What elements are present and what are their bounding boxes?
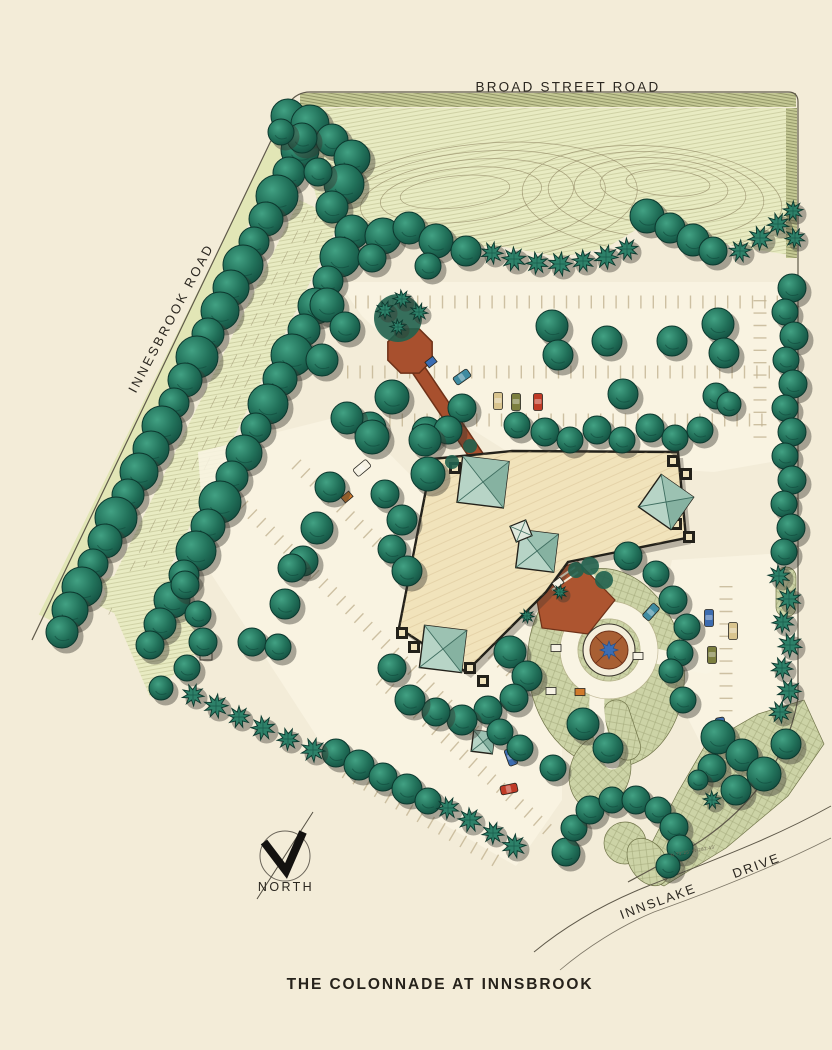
north-label: NORTH [258,880,314,894]
page-title: THE COLONNADE AT INNSBROOK [287,976,594,994]
site-plan-page: BROAD STREET ROAD INNESBROOK ROAD INNSLA… [0,0,832,1050]
parked-car [494,393,503,410]
bench [633,653,643,660]
parked-car [534,394,543,411]
parked-car [512,394,521,411]
bench [546,688,556,695]
fountain [583,624,635,676]
parked-car [708,647,717,664]
road-label-broad-street: BROAD STREET ROAD [476,80,661,95]
parked-car [705,610,714,627]
bench [551,645,561,652]
bench [575,689,585,696]
site-plan-drawing [0,0,832,1050]
parked-car [729,623,738,640]
